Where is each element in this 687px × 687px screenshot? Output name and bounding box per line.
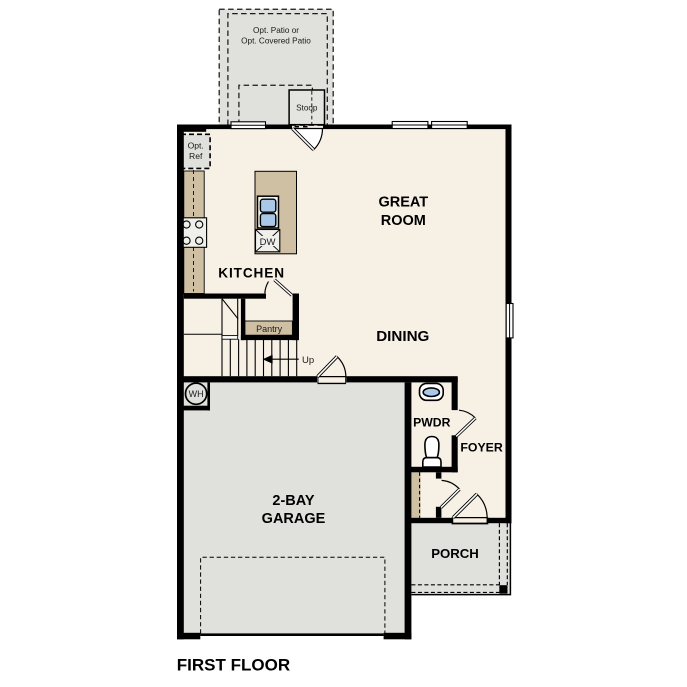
svg-text:DINING: DINING (376, 328, 429, 345)
svg-text:FIRST FLOOR: FIRST FLOOR (177, 656, 290, 675)
svg-text:DW: DW (260, 237, 276, 248)
svg-text:Opt.: Opt. (188, 140, 204, 150)
svg-text:Pantry: Pantry (256, 324, 283, 334)
svg-text:ROOM: ROOM (381, 213, 426, 229)
svg-text:GREAT: GREAT (378, 195, 428, 211)
svg-text:WH: WH (189, 389, 204, 399)
svg-text:Opt. Patio or: Opt. Patio or (253, 26, 299, 35)
svg-text:2-BAY: 2-BAY (272, 493, 315, 509)
svg-text:Up: Up (302, 355, 314, 366)
svg-text:FOYER: FOYER (460, 440, 502, 454)
svg-text:GARAGE: GARAGE (262, 511, 326, 527)
svg-text:Ref: Ref (189, 151, 203, 161)
svg-text:PWDR: PWDR (413, 415, 450, 429)
svg-text:Stoop: Stoop (296, 103, 318, 112)
svg-text:Opt. Covered Patio: Opt. Covered Patio (241, 37, 311, 46)
svg-text:KITCHEN: KITCHEN (218, 266, 285, 281)
svg-text:PORCH: PORCH (431, 546, 479, 561)
